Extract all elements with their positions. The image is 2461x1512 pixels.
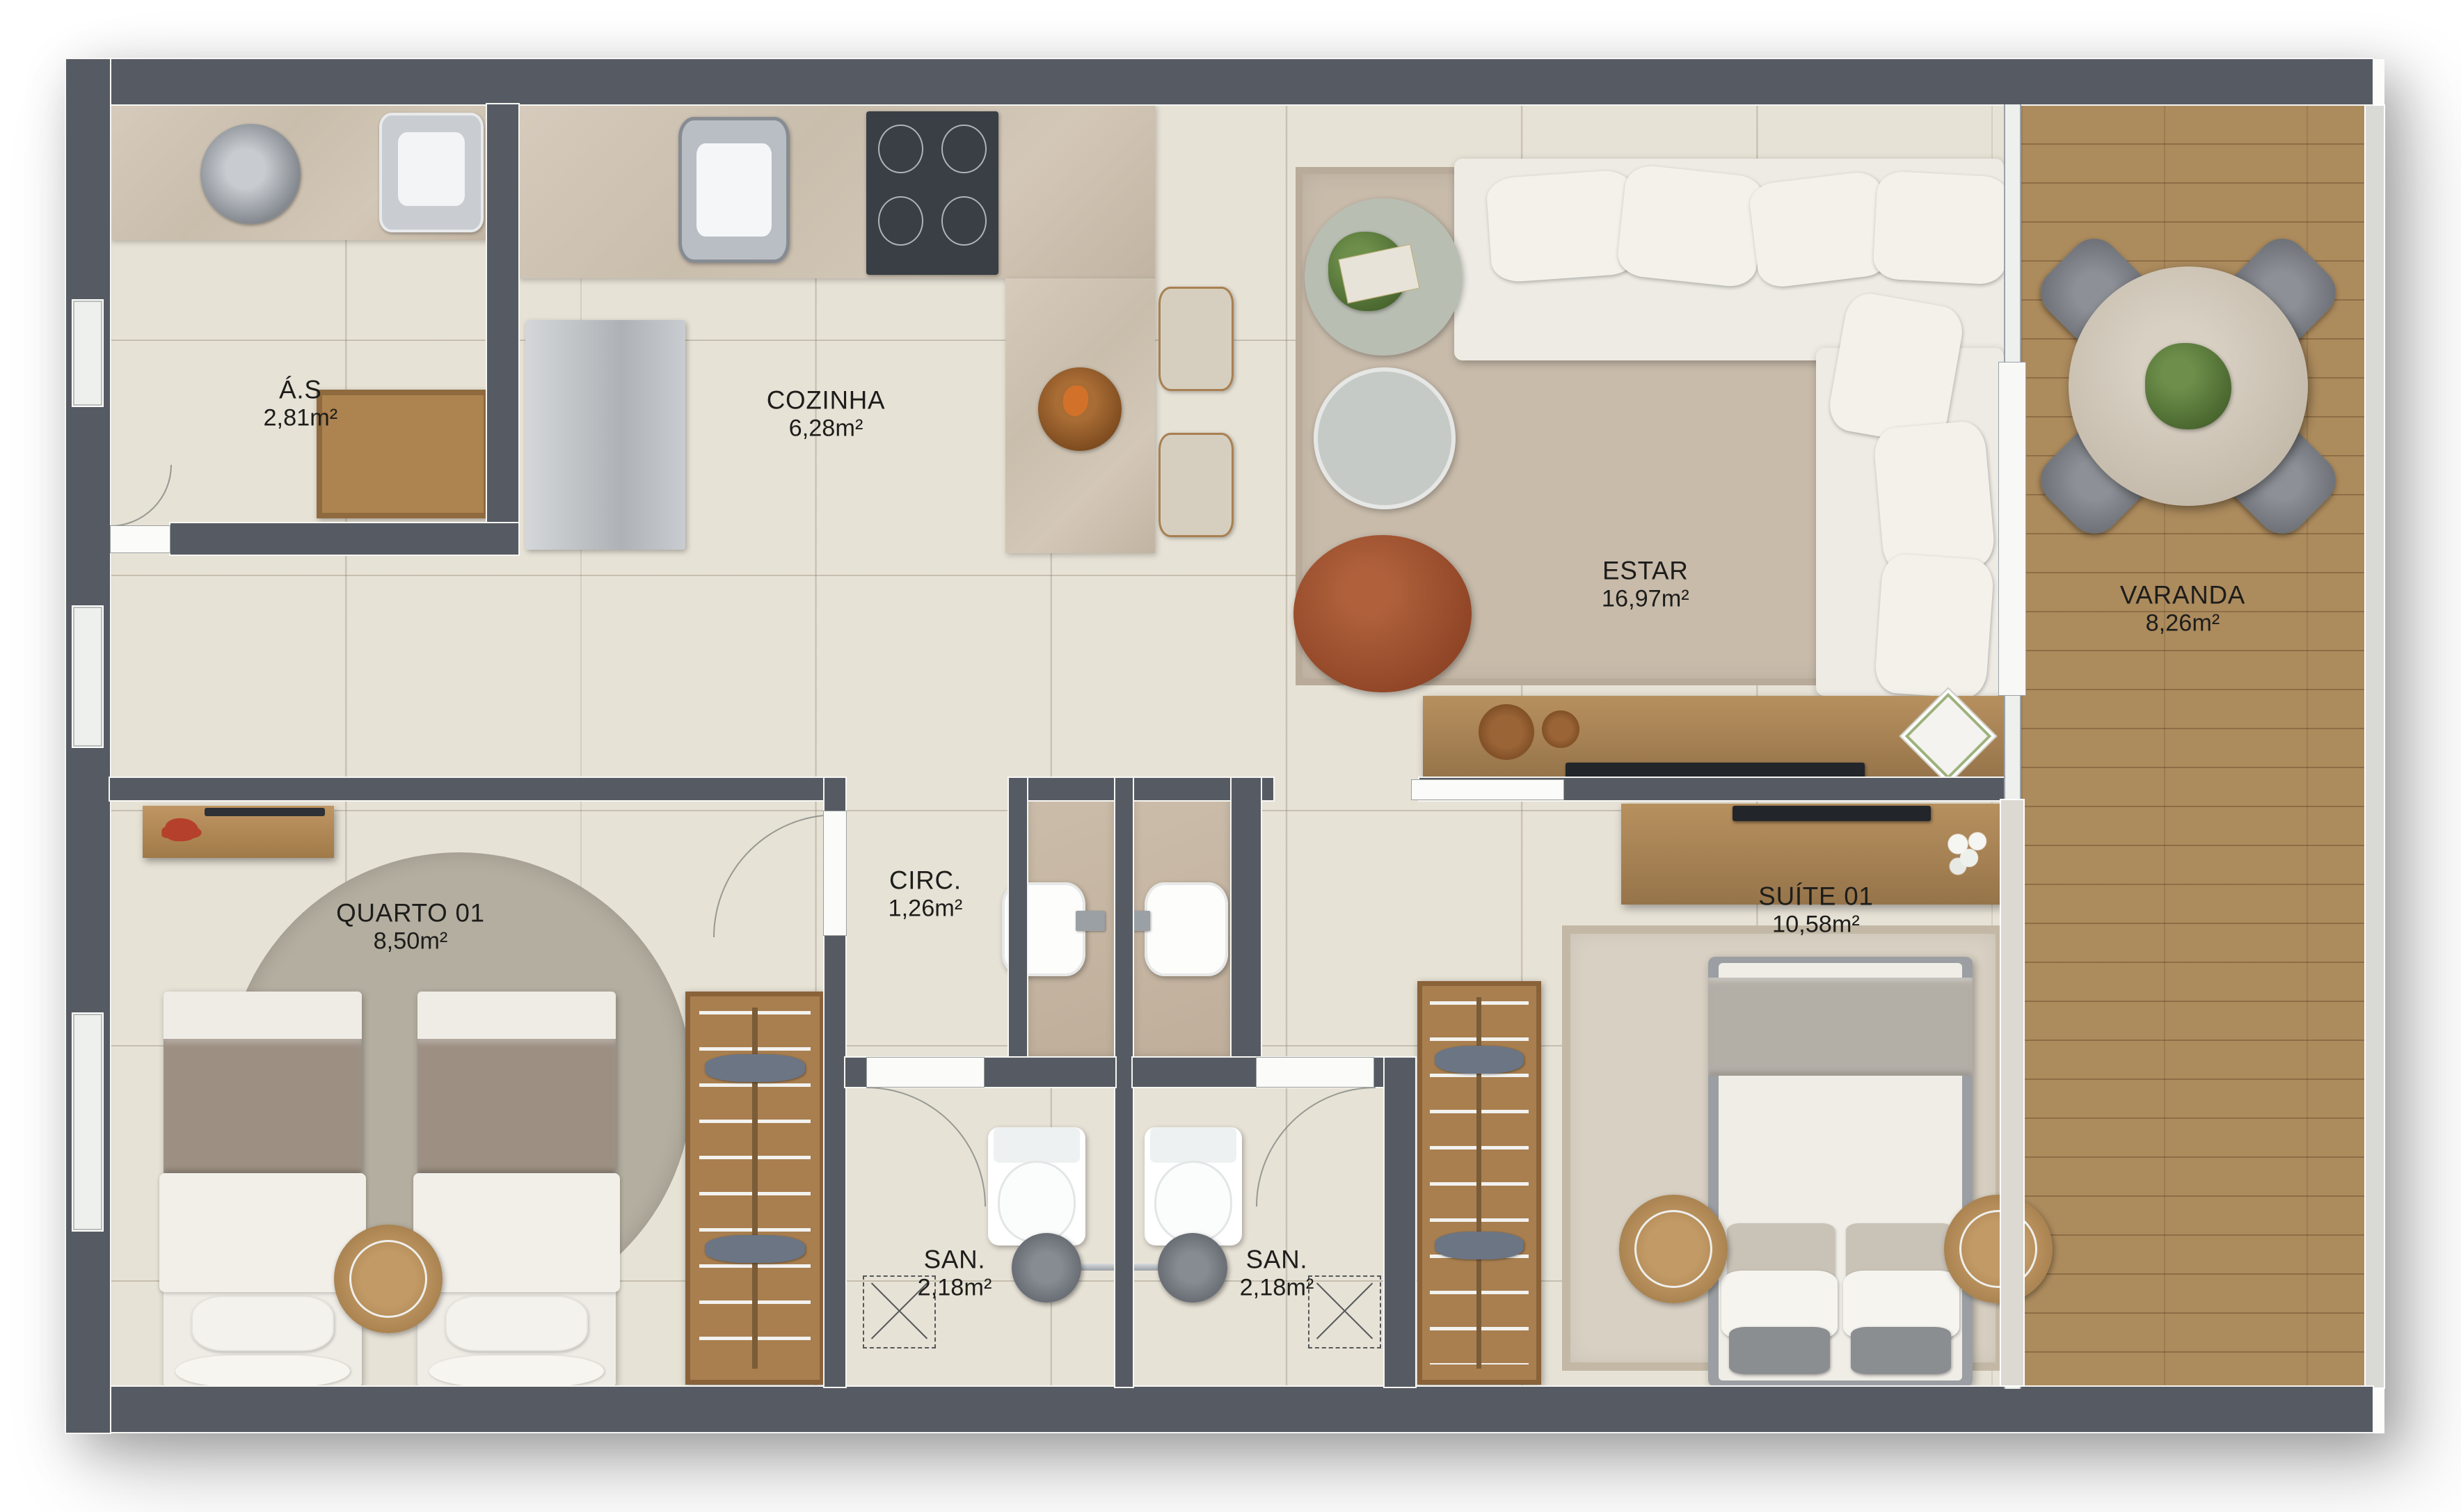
decor-plate [1479,704,1534,760]
toilet-bowl [998,1161,1076,1243]
burner-icon [878,125,923,174]
tv [1733,806,1931,821]
clothes [705,1054,805,1082]
kitchen-counter [518,104,1155,278]
glass-railing [2364,104,2385,1389]
washbasin [1145,882,1228,976]
bathroom-door [1256,1057,1374,1088]
faucet-icon [1076,911,1105,931]
blanket [164,1039,362,1173]
shower-head-icon [1012,1233,1081,1303]
bar-stool [1158,433,1234,537]
room-label-san1: SAN. 2,18m² [918,1246,992,1302]
single-bed [164,992,362,1387]
room-name: CIRC. [889,866,963,896]
room-name: VARANDA [2120,581,2245,610]
burner-icon [878,196,923,246]
bedside-table [334,1225,443,1333]
room-name: SUÍTE 01 [1758,882,1873,911]
room-label-varanda: VARANDA 8,26m² [2120,581,2245,637]
duvet [413,1173,619,1291]
accent-chair [1293,535,1472,692]
room-area: 8,26m² [2120,610,2245,637]
wall [66,59,2373,104]
toilet-tank [994,1127,1079,1163]
room-area: 8,50m² [336,928,485,955]
decor-crab [165,818,198,842]
bar-stool [1158,287,1234,391]
room-label-estar: ESTAR 16,97m² [1602,557,1689,613]
blanket [417,1039,616,1173]
pillow [429,1355,604,1387]
bathroom-door [866,1057,985,1088]
laundry-sink [379,113,484,232]
room-area: 2,81m² [263,404,337,431]
shower-head-icon [1158,1233,1227,1303]
shower-arm [1131,1264,1160,1271]
wall [1232,778,1261,1058]
flower-vase [1941,825,1997,880]
room-label-suite01: SUÍTE 01 10,58m² [1758,882,1873,938]
pillow [445,1296,588,1351]
floor-plan: Á.S 2,81m² COZINHA 6,28m² ESTAR 16,97m² … [0,0,2461,1512]
shower-area [1308,1275,1381,1348]
bedside-table [1944,1195,2053,1303]
room-label-san2: SAN. 2,18m² [1240,1246,1314,1302]
toilet-bowl [1154,1161,1232,1243]
throw-pillow [1874,553,1994,700]
service-door [110,525,170,553]
bedroom-door [823,811,847,936]
wall [110,778,845,800]
room-area: 10,58m² [1758,911,1873,938]
wardrobe [1417,981,1541,1385]
balcony-plant [2145,343,2231,429]
room-area: 1,26m² [889,896,963,923]
wall [66,1387,2373,1432]
clothes [1435,1046,1524,1074]
throw-pillow [1872,420,1996,575]
soundbar [205,808,325,816]
room-area: 6,28m² [767,415,886,442]
pillow [191,1296,334,1351]
kitchen-sink [678,117,790,263]
wall [1385,1058,1415,1387]
burner-icon [941,125,987,174]
room-area: 2,18m² [1240,1275,1314,1302]
wall [1115,778,1133,1387]
room-name: COZINHA [767,385,886,415]
window [72,299,104,407]
room-name: ESTAR [1602,557,1689,586]
room-area: 16,97m² [1602,586,1689,613]
room-label-cozinha: COZINHA 6,28m² [767,385,886,442]
toilet-tank [1150,1127,1236,1163]
room-label-quarto01: QUARTO 01 8,50m² [336,899,485,955]
room-name: SAN. [918,1246,992,1275]
double-bed [1708,957,1973,1387]
room-label-circ: CIRC. 1,26m² [889,866,963,923]
throw-pillow [1616,164,1765,289]
wall [170,523,518,555]
decor-plate [1542,710,1579,748]
toilet [988,1127,1085,1246]
window [2000,799,2025,1387]
room-name: Á.S [263,375,337,404]
room-label-servico: Á.S 2,81m² [263,375,337,431]
toilet [1145,1127,1242,1246]
blanket [1708,978,1973,1075]
pillow [175,1355,350,1387]
room-name: QUARTO 01 [336,899,485,928]
room-area: 2,18m² [918,1275,992,1302]
wall [1009,778,1027,1058]
cushion [1851,1327,1951,1374]
balcony-sliding-door [1998,362,2026,696]
window [72,605,104,748]
fruit-bowl [1038,367,1122,451]
coffee-table [1314,367,1456,509]
shower-arm [1076,1264,1119,1271]
throw-pillow [1748,170,1892,289]
window [72,1012,104,1232]
clothes [705,1235,805,1263]
laundry-basket [200,124,301,224]
cooktop [866,111,998,275]
single-bed [417,992,616,1387]
wardrobe [685,992,825,1385]
clothes [1435,1232,1524,1260]
throw-pillow [1486,169,1639,283]
wall [487,104,518,553]
storage-box [317,390,489,518]
burner-icon [941,196,987,246]
appliance [525,320,685,550]
bedside-table [1619,1195,1728,1303]
throw-pillow [1872,170,2010,285]
room-name: SAN. [1240,1246,1314,1275]
suite-sliding-door [1411,779,1564,800]
cushion [1729,1327,1829,1374]
